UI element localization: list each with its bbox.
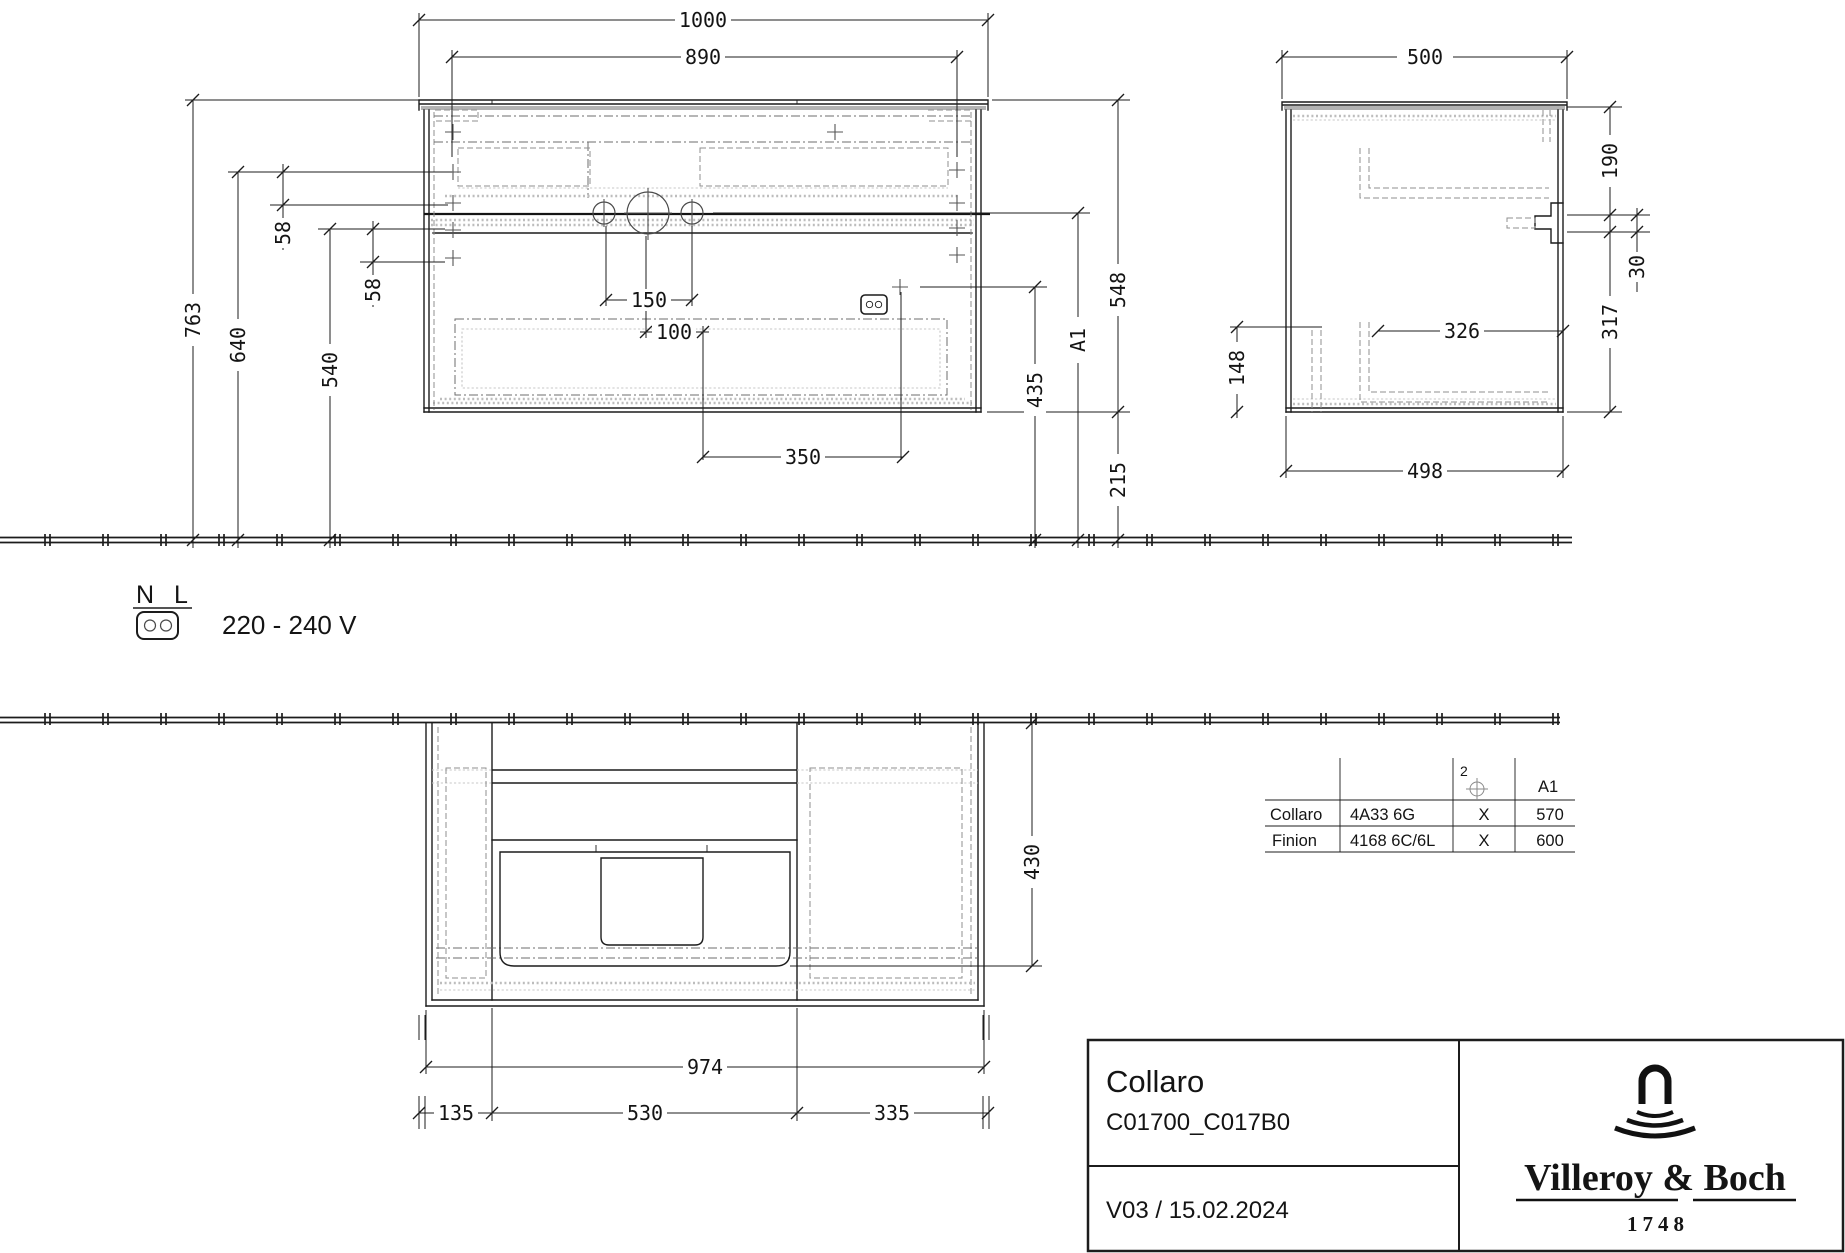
row-mark: X — [1478, 832, 1489, 850]
plan-outline — [426, 723, 984, 1006]
brand-wordmark: Villeroy & Boch — [1524, 1157, 1786, 1199]
dim-974: 974 — [687, 1055, 723, 1079]
dim-763: 763 — [181, 302, 205, 338]
dim-58-lower: 58 — [361, 278, 385, 302]
side-countertop — [1282, 102, 1567, 110]
wall-line-lower — [0, 713, 1560, 725]
dim-540: 540 — [318, 352, 342, 388]
table-row: Collaro 4A33 6G X 570 — [1270, 806, 1564, 824]
dim-58-upper: 58 — [271, 221, 295, 245]
dim-890: 890 — [685, 45, 721, 69]
row-article: 4A33 6G — [1350, 806, 1415, 824]
dim-640: 640 — [226, 327, 250, 363]
terminal-n-label: N — [136, 581, 154, 609]
side-interior-hidden-lines — [1312, 110, 1550, 412]
front-countertop — [419, 100, 988, 110]
drawing-page: 1000 890 150 100 350 763 640 540 58 58 5… — [0, 0, 1845, 1253]
dim-530: 530 — [627, 1101, 663, 1125]
front-cabinet-body — [424, 110, 990, 412]
front-position-crosses — [445, 124, 965, 295]
plan-interior — [432, 768, 978, 990]
variant-table: 2 A1 Collaro 4A33 6G X 570 Finion 4168 6… — [1265, 758, 1575, 852]
side-cabinet-body — [1286, 110, 1563, 412]
product-name: Collaro — [1106, 1064, 1204, 1099]
front-socket-symbol — [861, 295, 887, 314]
table-row: Finion 4168 6C/6L X 600 — [1272, 832, 1564, 850]
dim-190: 190 — [1598, 143, 1622, 179]
side-view: 500 190 30 317 148 326 498 — [1225, 45, 1650, 483]
dim-30: 30 — [1625, 255, 1649, 279]
dim-350: 350 — [785, 445, 821, 469]
dim-335: 335 — [874, 1101, 910, 1125]
title-block: Collaro C01700_C017B0 V03 / 15.02.2024 V… — [1088, 1040, 1843, 1251]
dim-100: 100 — [656, 320, 692, 344]
dim-135: 135 — [438, 1101, 474, 1125]
dim-A1: A1 — [1066, 328, 1090, 352]
dim-215: 215 — [1106, 462, 1130, 498]
dim-435: 435 — [1023, 372, 1047, 408]
front-dimensions: 1000 890 150 100 350 763 640 540 58 58 5… — [181, 8, 1130, 548]
dim-317: 317 — [1598, 304, 1622, 340]
side-mounting-bracket — [1507, 203, 1563, 243]
socket-icon — [137, 612, 178, 639]
drill-mark-icon — [1466, 778, 1488, 800]
side-dimensions: 500 190 30 317 148 326 498 — [1225, 45, 1650, 483]
dim-548: 548 — [1106, 272, 1130, 308]
dim-500: 500 — [1407, 45, 1443, 69]
plan-view: 430 974 135 530 335 — [413, 717, 1044, 1129]
technical-drawing: 1000 890 150 100 350 763 640 540 58 58 5… — [0, 0, 1845, 1253]
row-name: Collaro — [1270, 806, 1322, 824]
article-number: C01700_C017B0 — [1106, 1109, 1290, 1136]
dim-148: 148 — [1225, 350, 1249, 386]
brand-year: 1748 — [1627, 1212, 1689, 1236]
table-qty-header: 2 — [1460, 763, 1468, 779]
terminal-l-label: L — [174, 581, 188, 609]
version-date: V03 / 15.02.2024 — [1106, 1197, 1289, 1224]
row-name: Finion — [1272, 832, 1317, 850]
voltage-label: 220 - 240 V — [222, 610, 357, 640]
row-a1-value: 570 — [1536, 806, 1564, 824]
dim-1000: 1000 — [679, 8, 727, 32]
floor-line-upper — [0, 534, 1572, 546]
dim-498: 498 — [1407, 459, 1443, 483]
front-view: 1000 890 150 100 350 763 640 540 58 58 5… — [181, 8, 1130, 548]
row-article: 4168 6C/6L — [1350, 832, 1435, 850]
power-legend: N L 220 - 240 V — [133, 581, 357, 640]
dim-150: 150 — [631, 288, 667, 312]
row-a1-value: 600 — [1536, 832, 1564, 850]
table-a1-header: A1 — [1538, 778, 1558, 796]
dim-326: 326 — [1444, 319, 1480, 343]
plan-dimensions: 430 974 135 530 335 — [413, 717, 1044, 1129]
dim-430: 430 — [1020, 844, 1044, 880]
row-mark: X — [1478, 806, 1489, 824]
